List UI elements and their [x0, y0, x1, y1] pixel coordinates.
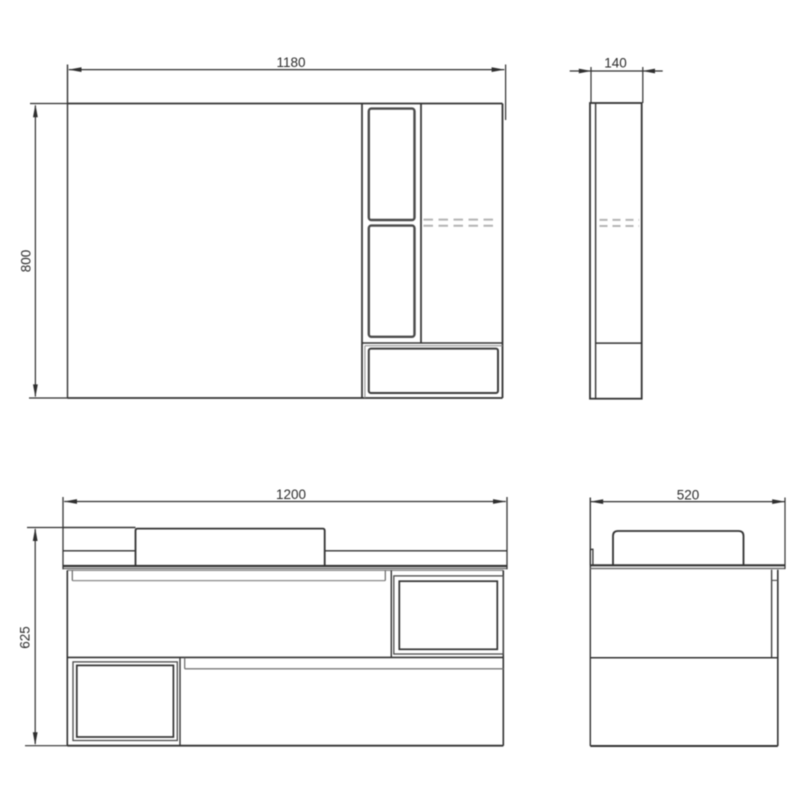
- svg-text:625: 625: [18, 626, 33, 649]
- svg-text:520: 520: [677, 487, 700, 502]
- svg-text:140: 140: [604, 56, 627, 71]
- svg-text:1180: 1180: [276, 55, 305, 70]
- svg-text:800: 800: [19, 250, 34, 273]
- svg-text:1200: 1200: [276, 487, 306, 502]
